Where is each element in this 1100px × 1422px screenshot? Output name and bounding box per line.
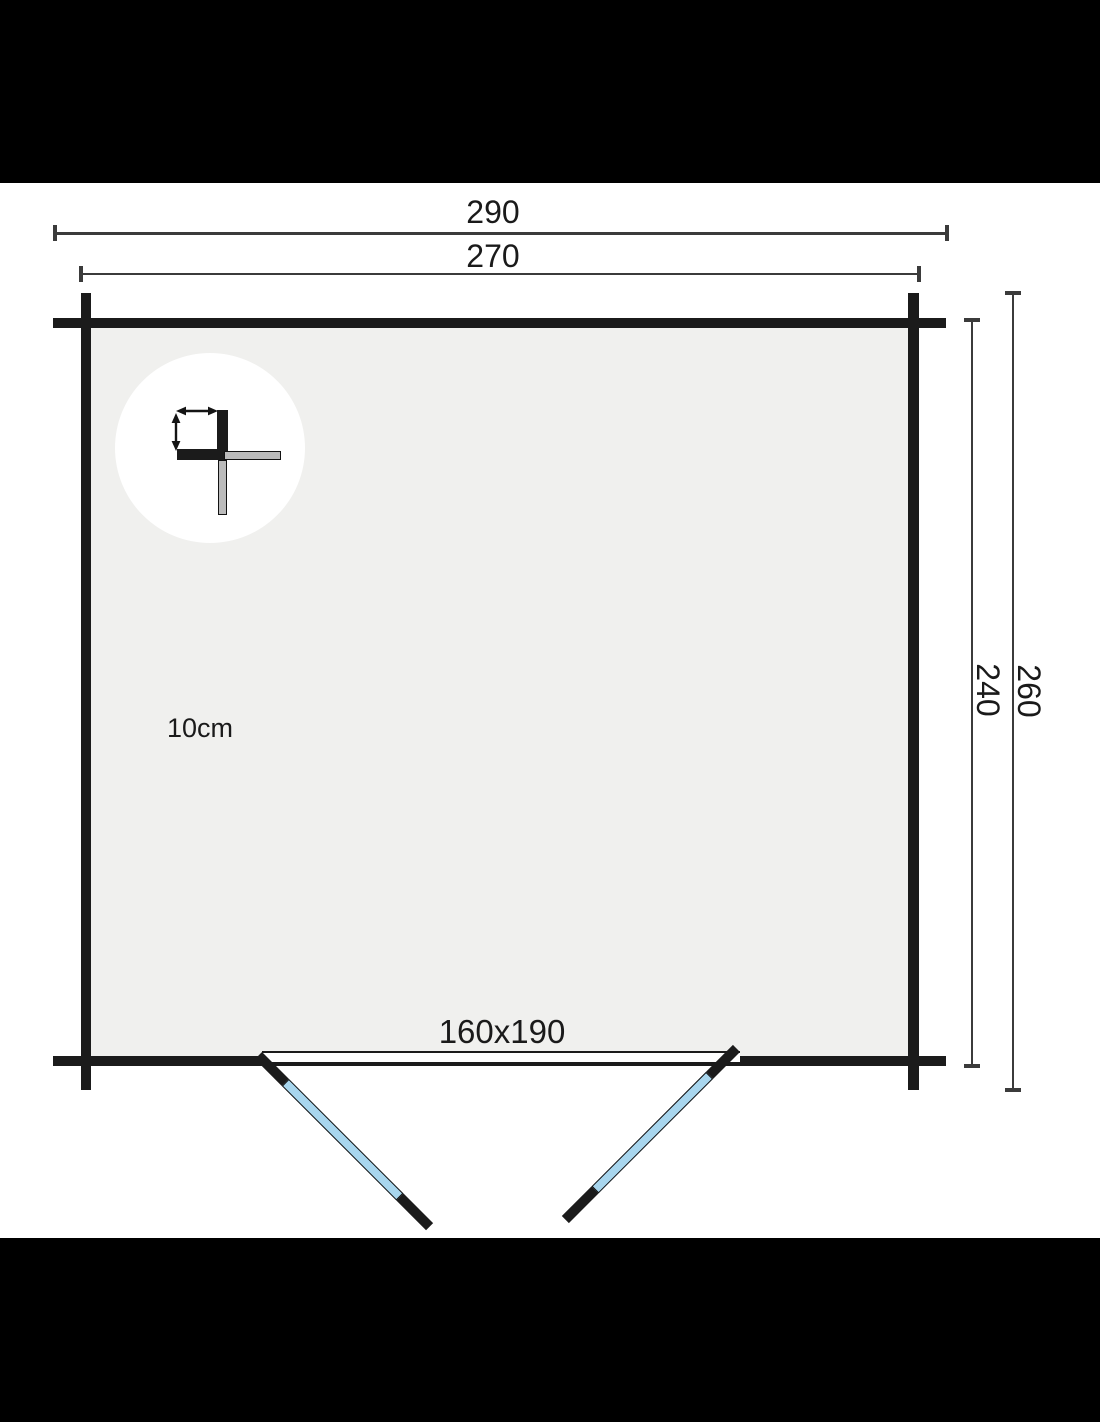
door-handle-segment [396, 1193, 433, 1230]
door-leaf-right [562, 1045, 740, 1223]
dim-tick [1005, 291, 1021, 295]
height-arrow-icon [169, 412, 183, 452]
dim-tick [917, 266, 921, 282]
door-leaf-left [255, 1052, 433, 1230]
door-opening-threshold [262, 1051, 740, 1066]
dim-width-outer-label: 290 [393, 196, 593, 228]
wall-post-left [81, 293, 91, 1090]
door-size-label: 160x190 [382, 1015, 622, 1048]
dim-tick [964, 318, 980, 322]
dim-tick [945, 225, 949, 241]
wall-thickness-detail: 10cm [115, 353, 305, 543]
dim-width-outer-line [55, 232, 947, 235]
dim-width-inner-line [81, 273, 919, 275]
dim-tick [79, 266, 83, 282]
dim-tick [964, 1064, 980, 1068]
wall-top [53, 318, 946, 328]
wall-post-right [908, 293, 919, 1090]
dim-depth-inner-label: 240 [972, 663, 1004, 716]
door-panel [592, 1072, 714, 1194]
wall-section-gray-vertical [218, 460, 227, 515]
letterbox-bottom [0, 1238, 1100, 1422]
floor-plan-image: 290 270 10cm 240 [0, 0, 1100, 1422]
door-panel [282, 1079, 404, 1201]
dim-tick [1005, 1088, 1021, 1092]
wall-thickness-label: 10cm [135, 715, 265, 742]
dim-tick [53, 225, 57, 241]
dim-depth-outer-label: 260 [1013, 664, 1045, 717]
door-handle-segment [562, 1186, 599, 1223]
letterbox-top [0, 0, 1100, 183]
wall-section-black-horizontal [177, 449, 224, 460]
dim-width-inner-label: 270 [393, 240, 593, 272]
wall-section-gray-horizontal [224, 451, 281, 460]
